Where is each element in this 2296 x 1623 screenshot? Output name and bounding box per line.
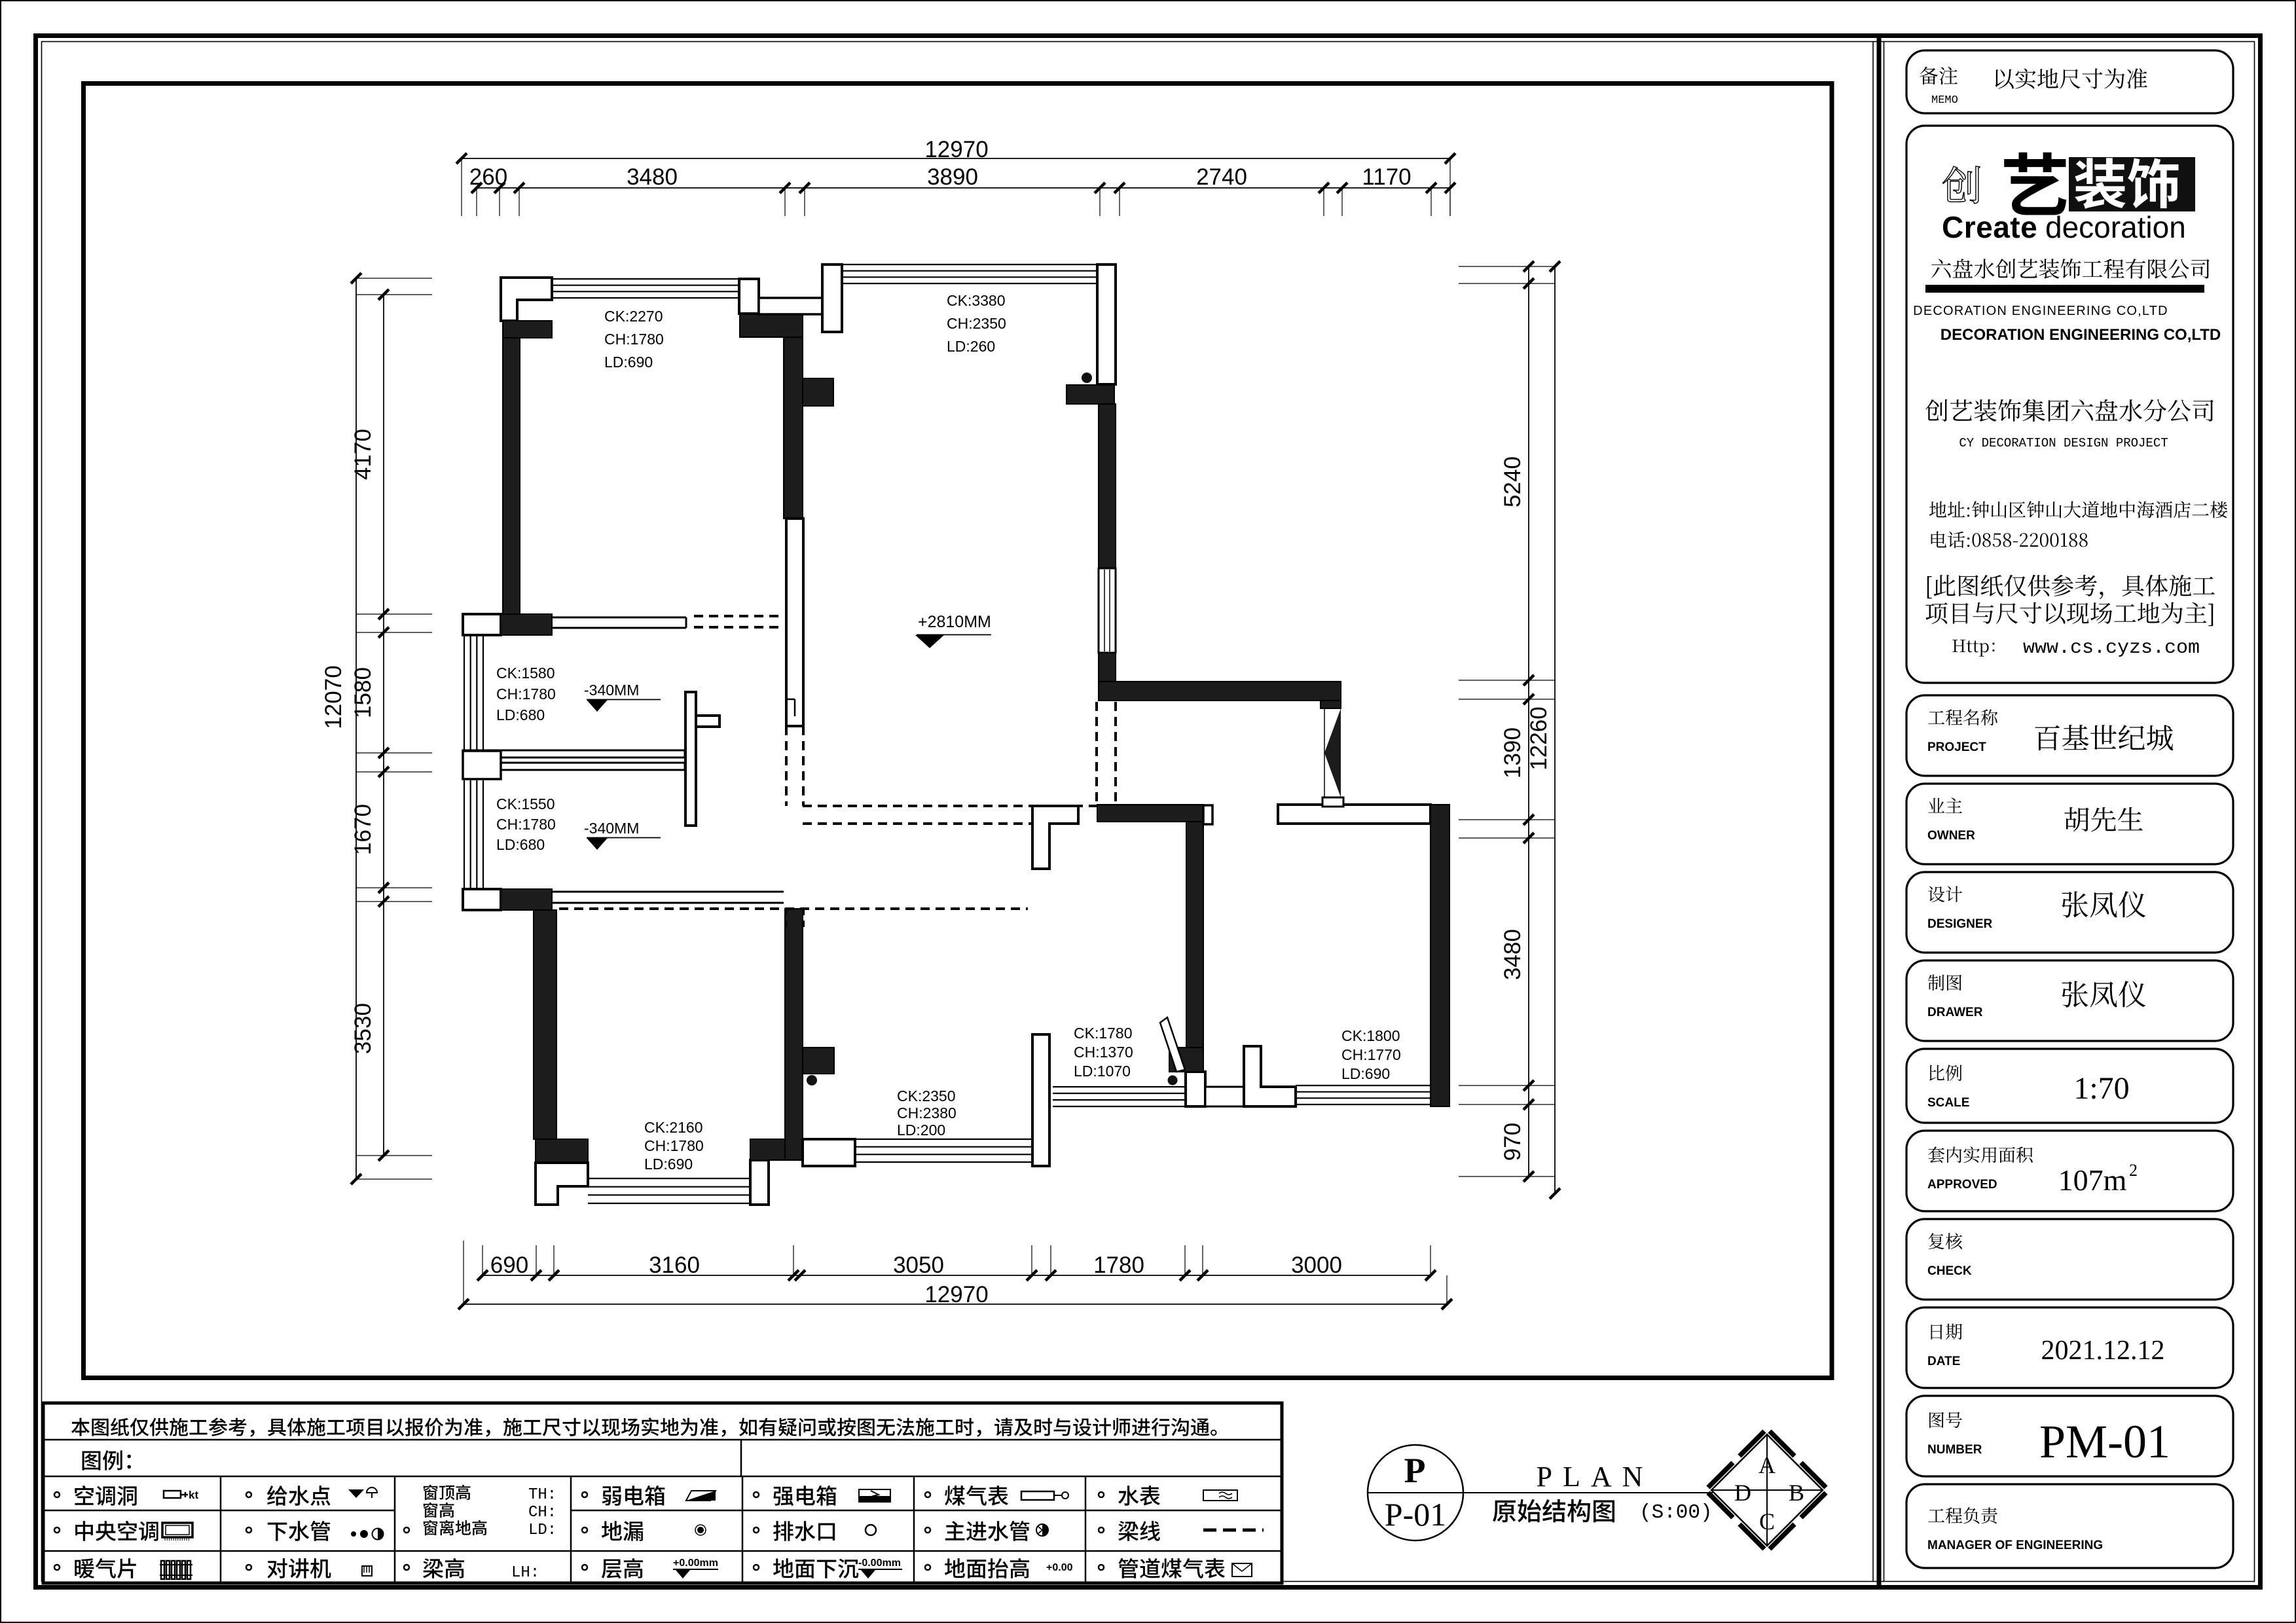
svg-text:LD:680: LD:680 bbox=[496, 836, 545, 853]
svg-text:690: 690 bbox=[490, 1252, 528, 1278]
svg-text:CY DECORATION DESIGN PROJECT: CY DECORATION DESIGN PROJECT bbox=[1959, 436, 2168, 450]
svg-text:CK:1800: CK:1800 bbox=[1341, 1027, 1400, 1044]
svg-text:DESIGNER: DESIGNER bbox=[1927, 917, 1993, 931]
svg-text:+0.00: +0.00 bbox=[1046, 1562, 1073, 1573]
svg-text:kt: kt bbox=[189, 1489, 198, 1501]
svg-text:+0.00mm: +0.00mm bbox=[673, 1558, 718, 1569]
svg-text:LD:690: LD:690 bbox=[604, 354, 653, 371]
svg-text:LD:: LD: bbox=[528, 1522, 556, 1539]
svg-text:P: P bbox=[1404, 1451, 1426, 1490]
svg-text:3000: 3000 bbox=[1291, 1252, 1342, 1278]
svg-text:LD:1070: LD:1070 bbox=[1074, 1063, 1131, 1080]
svg-text:CH:1780: CH:1780 bbox=[496, 816, 556, 833]
svg-text:5240: 5240 bbox=[1500, 456, 1525, 507]
svg-text:1:70: 1:70 bbox=[2073, 1071, 2129, 1106]
svg-text:1780: 1780 bbox=[1093, 1252, 1144, 1278]
svg-text:PROJECT: PROJECT bbox=[1927, 740, 1986, 754]
svg-text:CK:1780: CK:1780 bbox=[1074, 1025, 1133, 1042]
svg-text:3890: 3890 bbox=[927, 164, 978, 190]
svg-text:CK:2160: CK:2160 bbox=[644, 1119, 703, 1136]
svg-text:4170: 4170 bbox=[350, 429, 376, 480]
svg-text:CH:2350: CH:2350 bbox=[947, 315, 1006, 332]
svg-text:CK:1580: CK:1580 bbox=[496, 665, 555, 682]
svg-text:12970: 12970 bbox=[924, 137, 988, 162]
svg-text:1390: 1390 bbox=[1500, 727, 1525, 778]
svg-text:CHECK: CHECK bbox=[1927, 1264, 1972, 1278]
svg-text:3480: 3480 bbox=[1500, 929, 1525, 980]
svg-text:-340MM: -340MM bbox=[584, 820, 639, 837]
svg-text:107m: 107m bbox=[2058, 1163, 2127, 1197]
svg-text:SCALE: SCALE bbox=[1927, 1096, 1969, 1110]
svg-text:(S:00): (S:00) bbox=[1639, 1501, 1713, 1524]
svg-text:12260: 12260 bbox=[1526, 706, 1552, 770]
svg-text:TH:: TH: bbox=[528, 1486, 556, 1504]
svg-text:+2810MM: +2810MM bbox=[918, 613, 991, 631]
svg-text:DECORATION ENGINEERING CO,LTD: DECORATION ENGINEERING CO,LTD bbox=[1941, 326, 2221, 344]
svg-text:OWNER: OWNER bbox=[1927, 829, 1975, 843]
svg-text:LD:680: LD:680 bbox=[496, 706, 545, 723]
svg-text:12970: 12970 bbox=[924, 1282, 988, 1307]
svg-text:CH:1770: CH:1770 bbox=[1341, 1046, 1401, 1063]
svg-text:www.cs.cyzs.com: www.cs.cyzs.com bbox=[2023, 637, 2200, 659]
svg-text:LD:690: LD:690 bbox=[644, 1156, 693, 1173]
svg-text:B: B bbox=[1789, 1480, 1804, 1506]
svg-text:2740: 2740 bbox=[1196, 164, 1247, 190]
svg-text:-340MM: -340MM bbox=[584, 682, 639, 699]
svg-text:decoration: decoration bbox=[2045, 210, 2186, 244]
svg-text:3160: 3160 bbox=[649, 1252, 700, 1278]
svg-text:3530: 3530 bbox=[350, 1003, 376, 1054]
svg-text:D: D bbox=[1734, 1480, 1751, 1506]
svg-text:P-01: P-01 bbox=[1385, 1496, 1446, 1533]
svg-text:2: 2 bbox=[2129, 1161, 2138, 1180]
svg-text:PM-01: PM-01 bbox=[2039, 1415, 2170, 1468]
svg-text:CK:2270: CK:2270 bbox=[604, 308, 663, 325]
svg-text:3050: 3050 bbox=[893, 1252, 944, 1278]
svg-text:CH:1780: CH:1780 bbox=[496, 685, 556, 702]
svg-text:-0.00mm: -0.00mm bbox=[858, 1558, 901, 1569]
svg-text:CH:1780: CH:1780 bbox=[644, 1137, 704, 1154]
svg-text:LD:260: LD:260 bbox=[947, 338, 995, 355]
svg-text:1170: 1170 bbox=[1362, 164, 1411, 190]
svg-text:260: 260 bbox=[469, 164, 507, 190]
svg-text:2021.12.12: 2021.12.12 bbox=[2041, 1336, 2165, 1366]
svg-text:3480: 3480 bbox=[627, 164, 678, 190]
svg-text:Create: Create bbox=[1942, 210, 2037, 244]
svg-text:CH:1370: CH:1370 bbox=[1074, 1044, 1133, 1061]
svg-text:LD:690: LD:690 bbox=[1341, 1065, 1390, 1082]
svg-text:970: 970 bbox=[1500, 1123, 1525, 1161]
svg-text:DECORATION ENGINEERING CO,LT: DECORATION ENGINEERING CO,LTD bbox=[1913, 304, 2168, 318]
svg-text:NUMBER: NUMBER bbox=[1927, 1443, 1982, 1457]
svg-text:DATE: DATE bbox=[1927, 1355, 1960, 1368]
svg-text:LD:200: LD:200 bbox=[897, 1122, 945, 1139]
svg-text:1580: 1580 bbox=[350, 667, 376, 718]
svg-text:CK:2350: CK:2350 bbox=[897, 1087, 956, 1104]
svg-text:1670: 1670 bbox=[350, 804, 376, 855]
svg-text:DRAWER: DRAWER bbox=[1927, 1006, 1983, 1019]
svg-text:CH:1780: CH:1780 bbox=[604, 331, 664, 348]
svg-text:C: C bbox=[1759, 1508, 1775, 1535]
svg-text:CH:: CH: bbox=[528, 1504, 556, 1522]
svg-text:CH:2380: CH:2380 bbox=[897, 1104, 957, 1122]
svg-text:APPROVED: APPROVED bbox=[1927, 1178, 1997, 1192]
svg-text:12070: 12070 bbox=[321, 665, 346, 729]
svg-text:MANAGER OF ENGINEERING: MANAGER OF ENGINEERING bbox=[1927, 1539, 2103, 1552]
svg-text:CK:1550: CK:1550 bbox=[496, 795, 555, 812]
svg-text:CK:3380: CK:3380 bbox=[947, 292, 1006, 309]
svg-text:MEMO: MEMO bbox=[1931, 94, 1958, 107]
svg-text:A: A bbox=[1758, 1452, 1776, 1478]
svg-text:PLAN: PLAN bbox=[1537, 1461, 1654, 1493]
svg-text:LH:: LH: bbox=[511, 1564, 539, 1582]
